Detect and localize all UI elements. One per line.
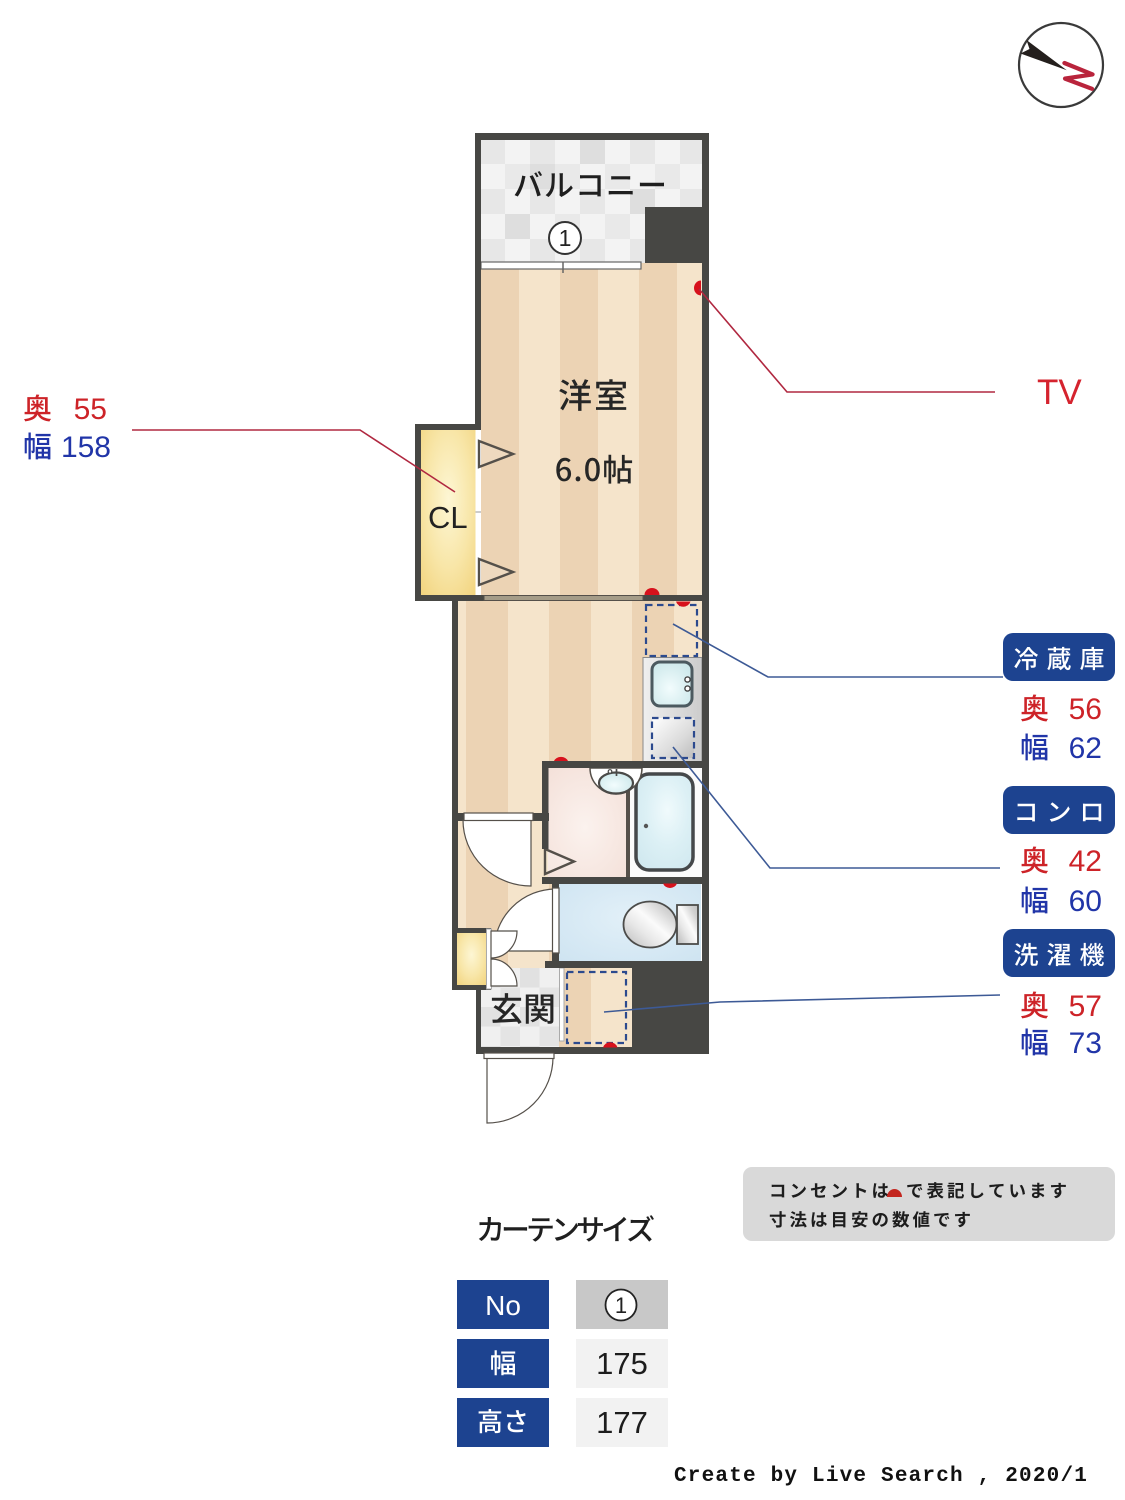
svg-text:55: 55 [74, 393, 107, 426]
svg-text:177: 177 [596, 1405, 648, 1440]
svg-text:No: No [485, 1290, 521, 1321]
svg-text:CL: CL [428, 500, 468, 535]
svg-text:42: 42 [1069, 845, 1102, 878]
svg-text:175: 175 [596, 1346, 648, 1381]
svg-text:73: 73 [1069, 1027, 1102, 1060]
svg-text:62: 62 [1069, 732, 1102, 765]
svg-text:56: 56 [1069, 693, 1102, 726]
svg-text:1: 1 [615, 1293, 627, 1318]
svg-text:TV: TV [1037, 373, 1082, 412]
svg-text:57: 57 [1069, 990, 1102, 1023]
svg-text:Create by Live Search , 2020/1: Create by Live Search , 2020/1 [674, 1465, 1088, 1488]
svg-text:1: 1 [559, 225, 572, 251]
svg-text:60: 60 [1069, 885, 1102, 918]
svg-text:158: 158 [61, 431, 111, 464]
